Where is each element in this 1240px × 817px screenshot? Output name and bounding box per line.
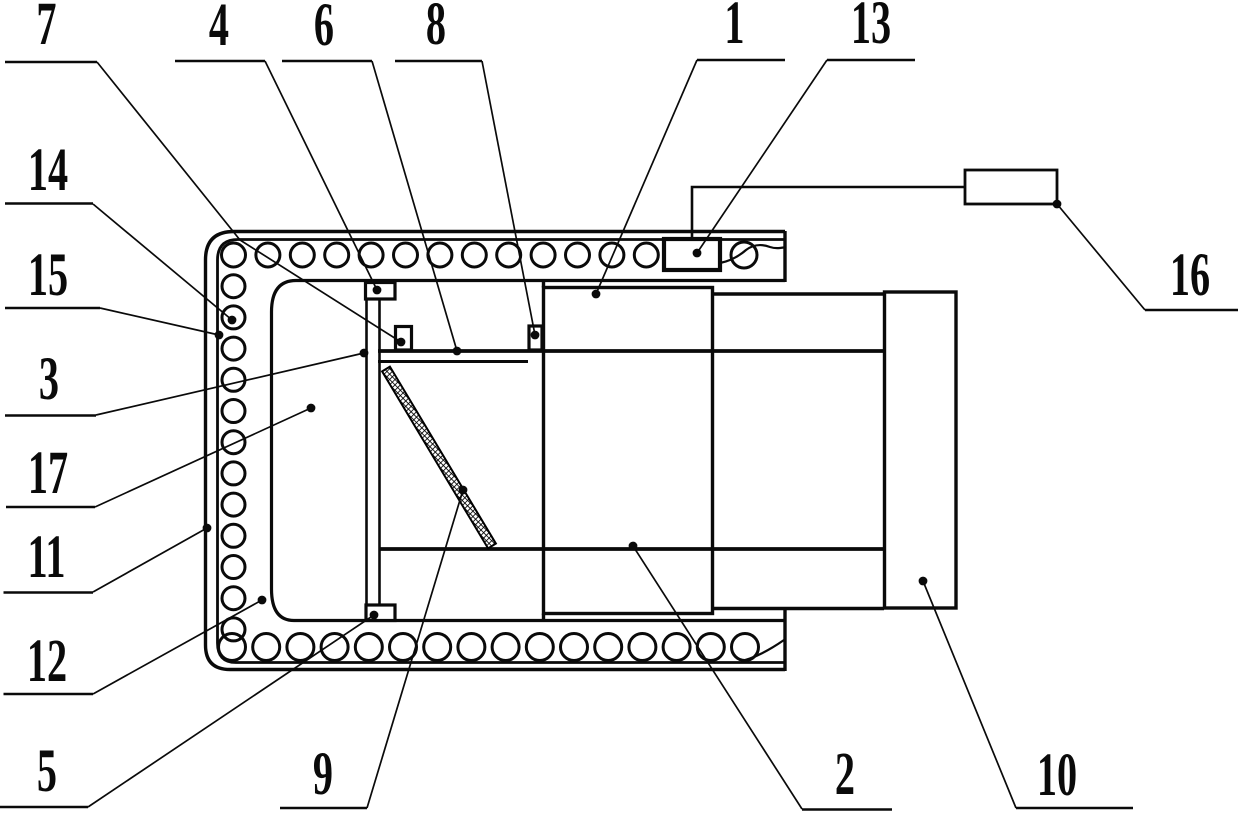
svg-text:7: 7	[36, 0, 56, 58]
svg-text:13: 13	[851, 0, 891, 57]
svg-text:1: 1	[724, 0, 744, 57]
svg-text:17: 17	[28, 440, 68, 507]
svg-text:16: 16	[1170, 242, 1210, 309]
svg-text:8: 8	[426, 0, 446, 58]
svg-text:9: 9	[313, 741, 333, 808]
svg-text:6: 6	[314, 0, 334, 59]
svg-text:11: 11	[27, 524, 65, 591]
svg-text:14: 14	[28, 137, 68, 204]
svg-text:12: 12	[27, 628, 67, 695]
svg-text:15: 15	[28, 242, 68, 309]
svg-text:2: 2	[835, 741, 855, 808]
svg-text:3: 3	[39, 346, 59, 413]
svg-text:5: 5	[37, 738, 57, 805]
svg-text:10: 10	[1037, 742, 1077, 809]
svg-text:4: 4	[209, 0, 229, 59]
